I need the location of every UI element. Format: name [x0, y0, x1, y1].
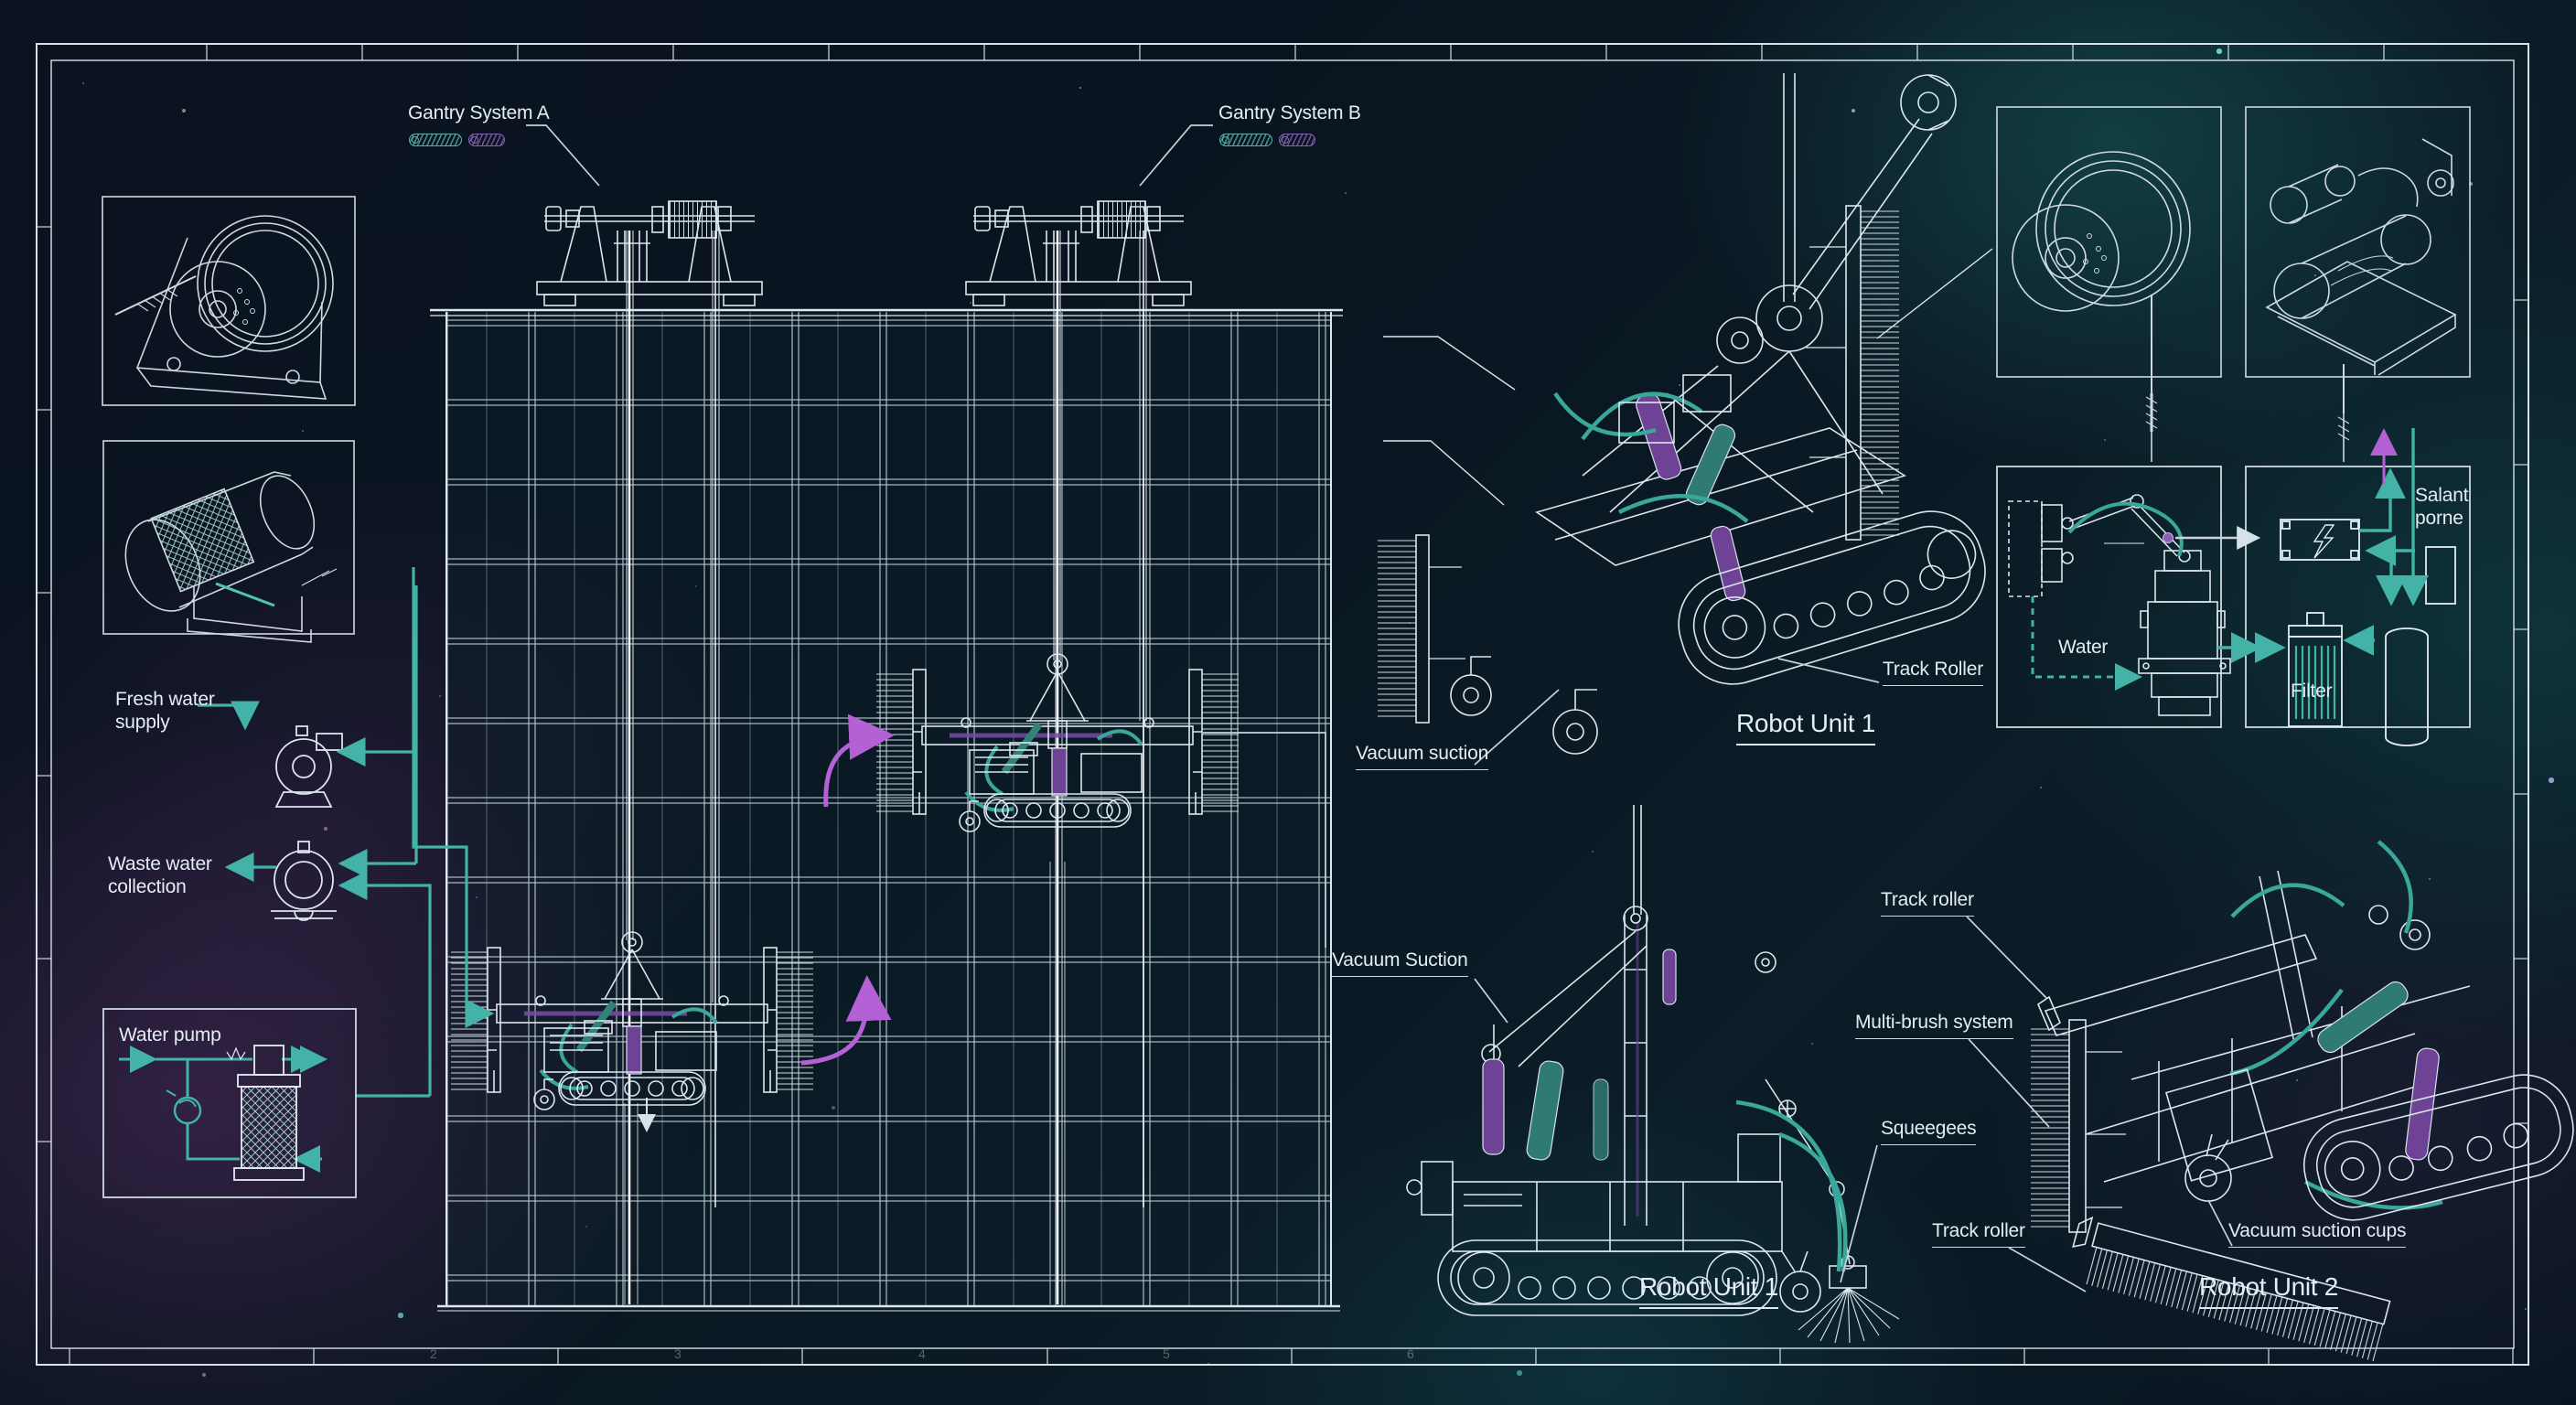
robot-unit-1-side-title: Robot Unit 1: [1639, 1271, 1778, 1309]
water-pump-label: Water pump: [119, 1024, 221, 1047]
squeegees-label: Squeegees: [1881, 1118, 1976, 1145]
water-arm-box: [1997, 467, 2230, 727]
ruler-number: 4: [918, 1346, 926, 1361]
multi-brush-label: Multi-brush system: [1855, 1012, 2013, 1039]
gantry-a-badge-purple: [468, 134, 505, 146]
gantry-b-drawing: [966, 201, 1191, 306]
blueprint-page: Gantry System A Gantry System B Fresh wa…: [0, 0, 2576, 1405]
robot-unit-1-iso-title: Robot Unit 1: [1736, 708, 1875, 745]
winch-motor-box: [2246, 107, 2470, 462]
fresh-water-label: Fresh water supply: [115, 689, 215, 735]
track-roller-top-label: Track roller: [1881, 889, 1974, 917]
blueprint-canvas: [0, 0, 2576, 1405]
gantry-a-label: Gantry System A: [408, 102, 550, 125]
gantry-b-label: Gantry System B: [1218, 102, 1361, 125]
winch-detail-box: [102, 197, 355, 405]
vacuum-cups-label: Vacuum suction cups: [2228, 1220, 2406, 1248]
robot-unit-1-side-drawing: [1407, 805, 1899, 1343]
gantry-a-drawing: [537, 201, 762, 306]
gantry-a-badge-teal: [409, 134, 462, 146]
salant-label: Salant porne: [2415, 485, 2468, 531]
ruler-number: 6: [1407, 1346, 1414, 1361]
water-label: Water: [2058, 637, 2108, 660]
filter-label: Filter: [2291, 681, 2332, 703]
gantry-b-badge-purple: [1279, 134, 1315, 146]
gantry-a-badges: [409, 134, 505, 146]
cable-spool-box: [1997, 107, 2221, 462]
ruler-number: 2: [430, 1346, 437, 1361]
robot-unit-1-iso-drawing: [1378, 73, 1998, 754]
gantry-b-badges: [1219, 134, 1315, 146]
motor-detail-box: [103, 441, 354, 642]
ruler-number: 3: [674, 1346, 682, 1361]
ruler-number: 5: [1163, 1346, 1170, 1361]
vacuum-suction-side-label: Vacuum Suction: [1332, 949, 1468, 977]
waste-water-label: Waste water collection: [108, 853, 212, 899]
water-plumbing: [198, 567, 488, 1096]
track-roller-iso-label: Track Roller: [1883, 659, 1983, 686]
vacuum-suction-iso-label: Vacuum suction: [1356, 743, 1488, 770]
robot-unit-2-title: Robot Unit 2: [2199, 1271, 2338, 1309]
track-roller-bottom-label: Track roller: [1932, 1220, 2025, 1248]
gantry-b-badge-teal: [1219, 134, 1272, 146]
